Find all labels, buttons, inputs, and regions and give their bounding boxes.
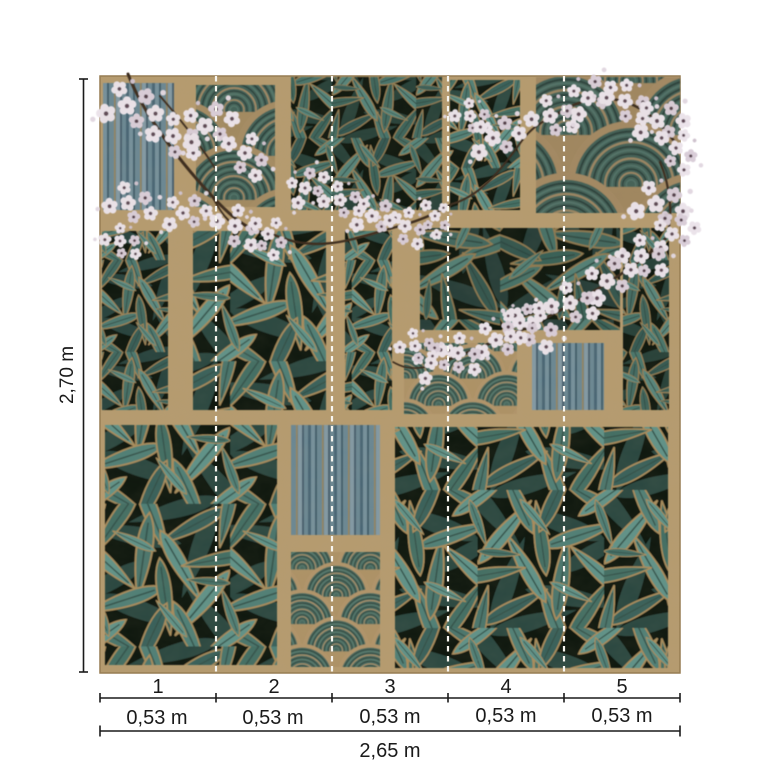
svg-text:0,53 m: 0,53 m [126,707,187,729]
svg-text:2: 2 [268,676,279,698]
svg-text:0,53 m: 0,53 m [591,705,652,727]
svg-text:1: 1 [152,676,163,698]
svg-text:0,53 m: 0,53 m [242,707,303,729]
svg-text:5: 5 [616,676,627,698]
svg-text:4: 4 [500,676,511,698]
svg-text:2,65 m: 2,65 m [359,740,420,762]
svg-text:2,70 m: 2,70 m [57,346,78,404]
svg-text:0,53 m: 0,53 m [359,706,420,728]
svg-text:0,53 m: 0,53 m [475,705,536,727]
svg-text:3: 3 [384,676,395,698]
